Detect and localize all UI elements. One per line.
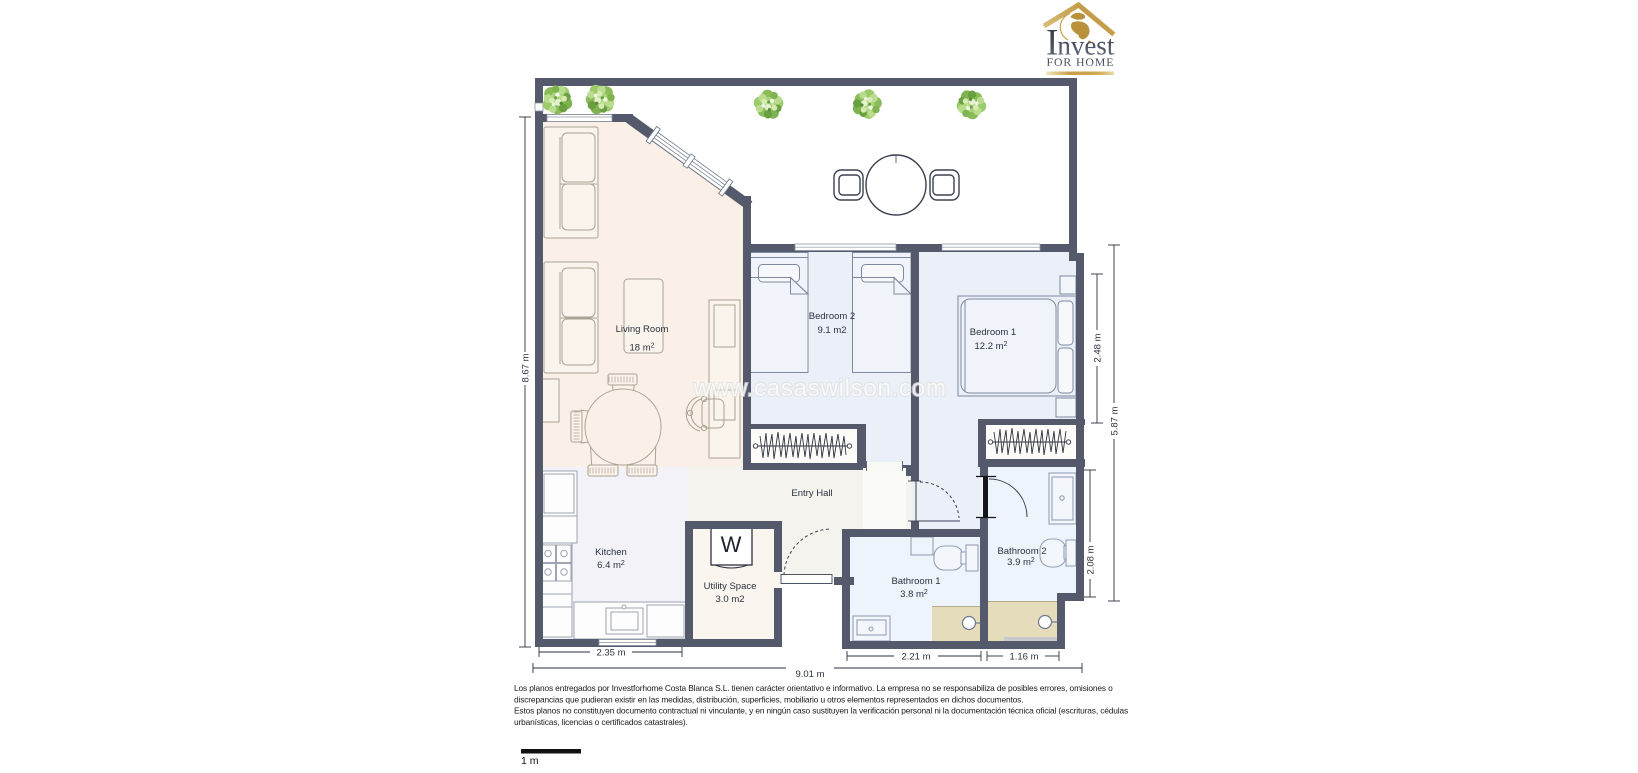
- svg-text:8.67 m: 8.67 m: [521, 353, 532, 382]
- svg-text:Kitchen: Kitchen: [595, 547, 627, 558]
- svg-text:12.2 m2: 12.2 m2: [975, 341, 1008, 352]
- svg-text:W: W: [721, 532, 742, 557]
- svg-text:www.casaswilson.com: www.casaswilson.com: [692, 375, 946, 402]
- svg-text:2.35 m: 2.35 m: [596, 648, 625, 659]
- svg-text:5.87 m: 5.87 m: [1110, 406, 1121, 435]
- svg-text:Estos planos no constituyen do: Estos planos no constituyen documento co…: [514, 706, 1128, 716]
- svg-text:Bathroom 2: Bathroom 2: [997, 546, 1046, 557]
- svg-text:1.16 m: 1.16 m: [1009, 652, 1038, 663]
- svg-text:urbanísticas, licencias o cert: urbanísticas, licencias o certificados c…: [514, 717, 688, 727]
- svg-text:Bedroom 1: Bedroom 1: [970, 327, 1016, 338]
- svg-text:Los planos entregados por Inve: Los planos entregados por Investforhome …: [514, 683, 1113, 693]
- svg-text:2.08 m: 2.08 m: [1086, 545, 1097, 574]
- svg-text:3.0 m2: 3.0 m2: [715, 594, 744, 605]
- svg-text:1 m: 1 m: [521, 755, 539, 767]
- svg-text:9.1 m2: 9.1 m2: [817, 325, 846, 336]
- svg-text:2.21 m: 2.21 m: [901, 652, 930, 663]
- svg-text:Entry Hall: Entry Hall: [791, 488, 832, 499]
- svg-text:discrepancias que pudieran exi: discrepancias que pudieran existir en la…: [514, 694, 1023, 704]
- svg-text:Bedroom 2: Bedroom 2: [809, 311, 855, 322]
- svg-text:Living Room: Living Room: [616, 324, 669, 335]
- svg-text:3.9 m2: 3.9 m2: [1007, 557, 1035, 568]
- svg-text:9.01 m: 9.01 m: [795, 669, 824, 680]
- svg-text:FOR HOME: FOR HOME: [1047, 55, 1115, 69]
- svg-text:3.8 m2: 3.8 m2: [900, 589, 928, 600]
- svg-text:6.4 m2: 6.4 m2: [597, 560, 625, 571]
- svg-text:Bathroom 1: Bathroom 1: [891, 576, 940, 587]
- svg-text:2.48 m: 2.48 m: [1093, 333, 1104, 362]
- svg-text:Utility Space: Utility Space: [704, 581, 757, 592]
